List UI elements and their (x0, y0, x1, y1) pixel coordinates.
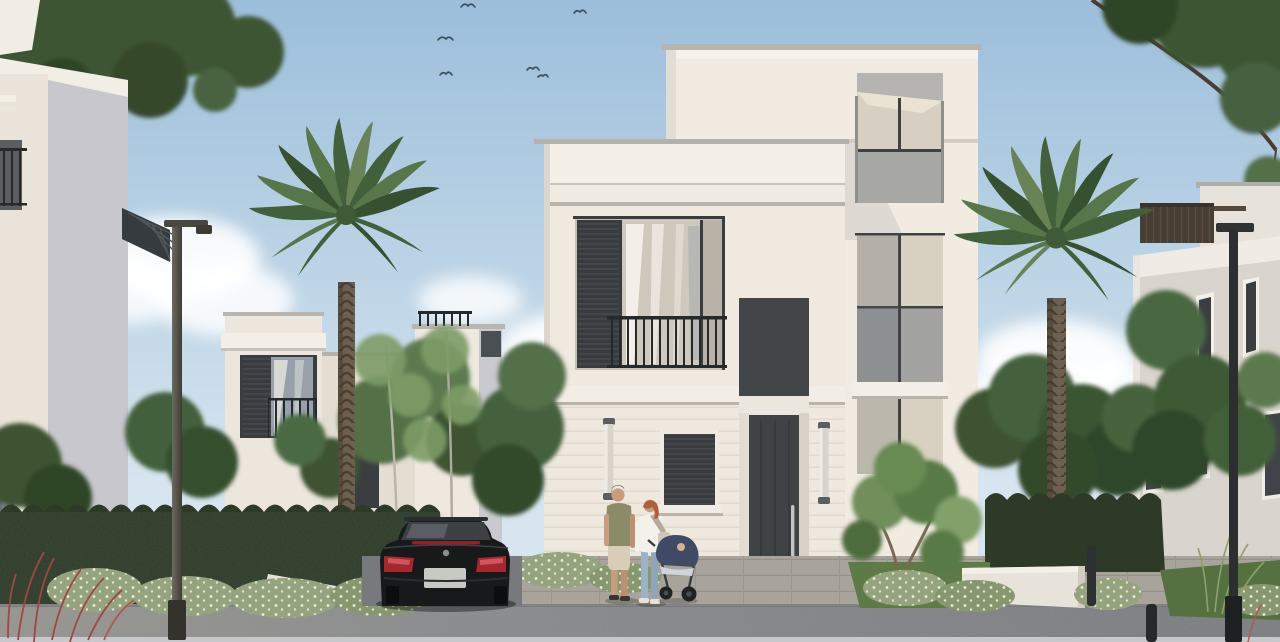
ground-cornice-right (806, 386, 845, 404)
architectural-render (0, 0, 1280, 642)
wall-sconce-left (603, 418, 615, 500)
bollard-small (1087, 546, 1096, 606)
bollard-large (1146, 604, 1157, 642)
wall-sconce-right (818, 422, 830, 504)
entry-recess (739, 298, 809, 598)
tower-window-top (855, 73, 944, 203)
balcony-railing-left (0, 148, 27, 206)
tower-window-middle (855, 233, 945, 382)
baby-head (677, 543, 685, 551)
ground-window (656, 430, 723, 516)
parapet-cap (534, 139, 849, 144)
hedge-right (985, 493, 1165, 572)
villa-scene (0, 0, 1280, 642)
balcony-railing (607, 316, 727, 368)
car-emblem (443, 550, 449, 556)
license-plate (424, 568, 466, 588)
curb-strip (0, 637, 1280, 642)
ground-cornice-left (544, 386, 742, 404)
tower-ledge (852, 382, 948, 398)
roof-parapet-cap (662, 44, 982, 50)
main-two-storey-block (534, 139, 849, 600)
brake-light-strip (412, 541, 480, 545)
